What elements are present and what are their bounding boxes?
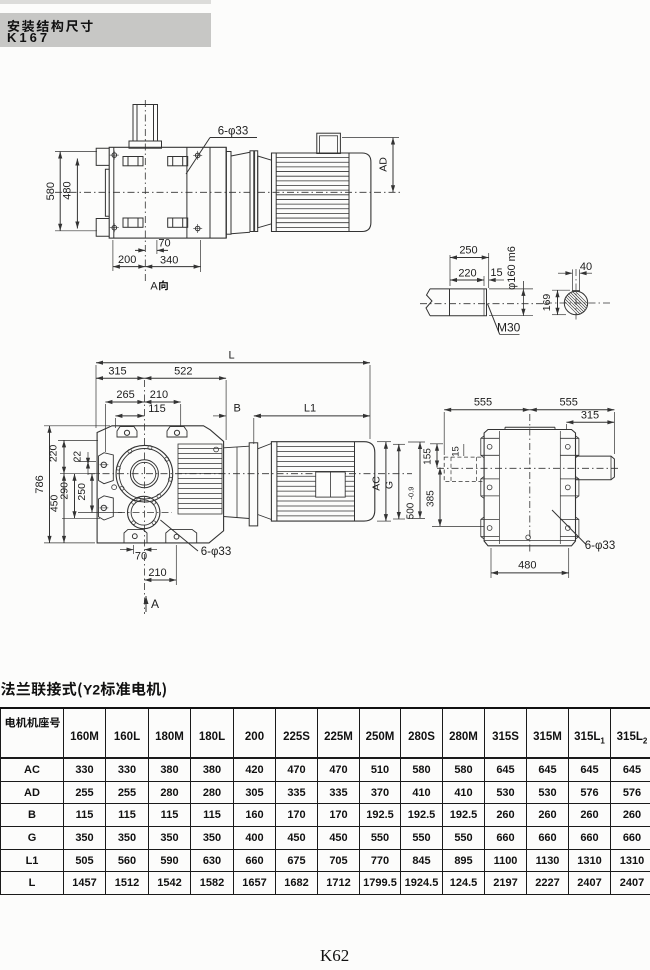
svg-text:522: 522 [174,365,192,377]
svg-text:555: 555 [560,396,578,408]
svg-text:φ160 m6: φ160 m6 [506,246,518,290]
svg-text:70: 70 [158,237,170,249]
svg-text:200: 200 [118,254,136,266]
svg-text:Y2: Y2 [83,682,100,698]
svg-text:385: 385 [426,490,437,507]
svg-text:210: 210 [148,567,166,579]
svg-text:315: 315 [581,410,599,422]
svg-text:40: 40 [580,261,592,273]
svg-text:A: A [151,597,159,611]
svg-text:70: 70 [135,551,147,563]
svg-text:6-φ33: 6-φ33 [585,540,615,552]
svg-text:-0.9: -0.9 [407,487,416,500]
svg-text:315: 315 [108,365,126,377]
svg-text:250: 250 [459,245,477,257]
svg-text:500: 500 [406,502,417,519]
svg-text:15: 15 [451,446,462,457]
svg-text:B: B [234,402,241,414]
svg-text:340: 340 [160,254,178,266]
svg-text:AD: AD [378,157,390,172]
svg-text:A: A [150,280,158,292]
svg-text:6-φ33: 6-φ33 [218,126,248,138]
svg-text:15: 15 [490,267,502,279]
svg-text:480: 480 [62,181,74,199]
svg-text:6-φ33: 6-φ33 [201,546,231,558]
svg-text:G: G [383,481,395,489]
svg-text:169: 169 [541,294,553,312]
svg-text:265: 265 [116,389,134,401]
svg-text:786: 786 [34,475,46,493]
svg-text:AC: AC [371,476,383,491]
svg-text:M30: M30 [497,321,521,335]
svg-text:220: 220 [458,268,476,280]
svg-text:210: 210 [150,389,168,401]
svg-text:115: 115 [148,403,166,415]
svg-text:220: 220 [48,444,60,462]
svg-text:555: 555 [474,396,492,408]
svg-text:L1: L1 [304,402,316,414]
svg-text:480: 480 [518,559,536,571]
svg-text:155: 155 [423,448,434,465]
svg-text:290: 290 [59,482,71,500]
svg-text:L: L [229,350,235,362]
svg-text:580: 580 [45,182,57,200]
svg-text:250: 250 [76,483,88,501]
svg-text:22: 22 [73,451,84,463]
